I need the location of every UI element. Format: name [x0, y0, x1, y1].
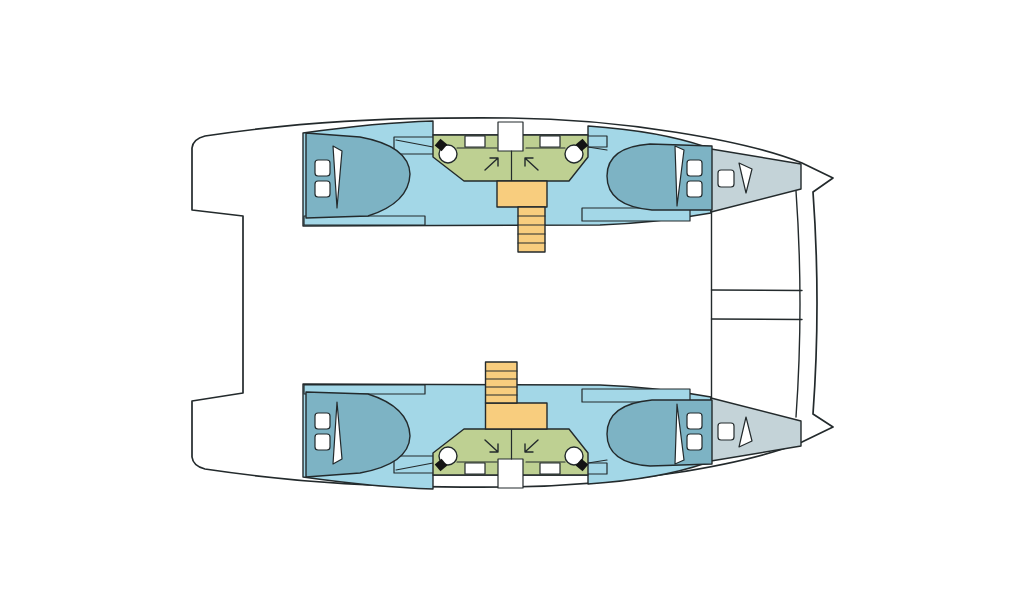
stair-steps [486, 362, 518, 403]
anchor-channel-upper [712, 290, 803, 291]
stair-steps [518, 207, 545, 252]
stair-landing [486, 403, 548, 429]
anchor-channel-lower [712, 319, 803, 320]
floorplan-canvas [0, 0, 1024, 600]
catamaran-floorplan [0, 0, 1024, 600]
stair-landing [497, 181, 547, 207]
